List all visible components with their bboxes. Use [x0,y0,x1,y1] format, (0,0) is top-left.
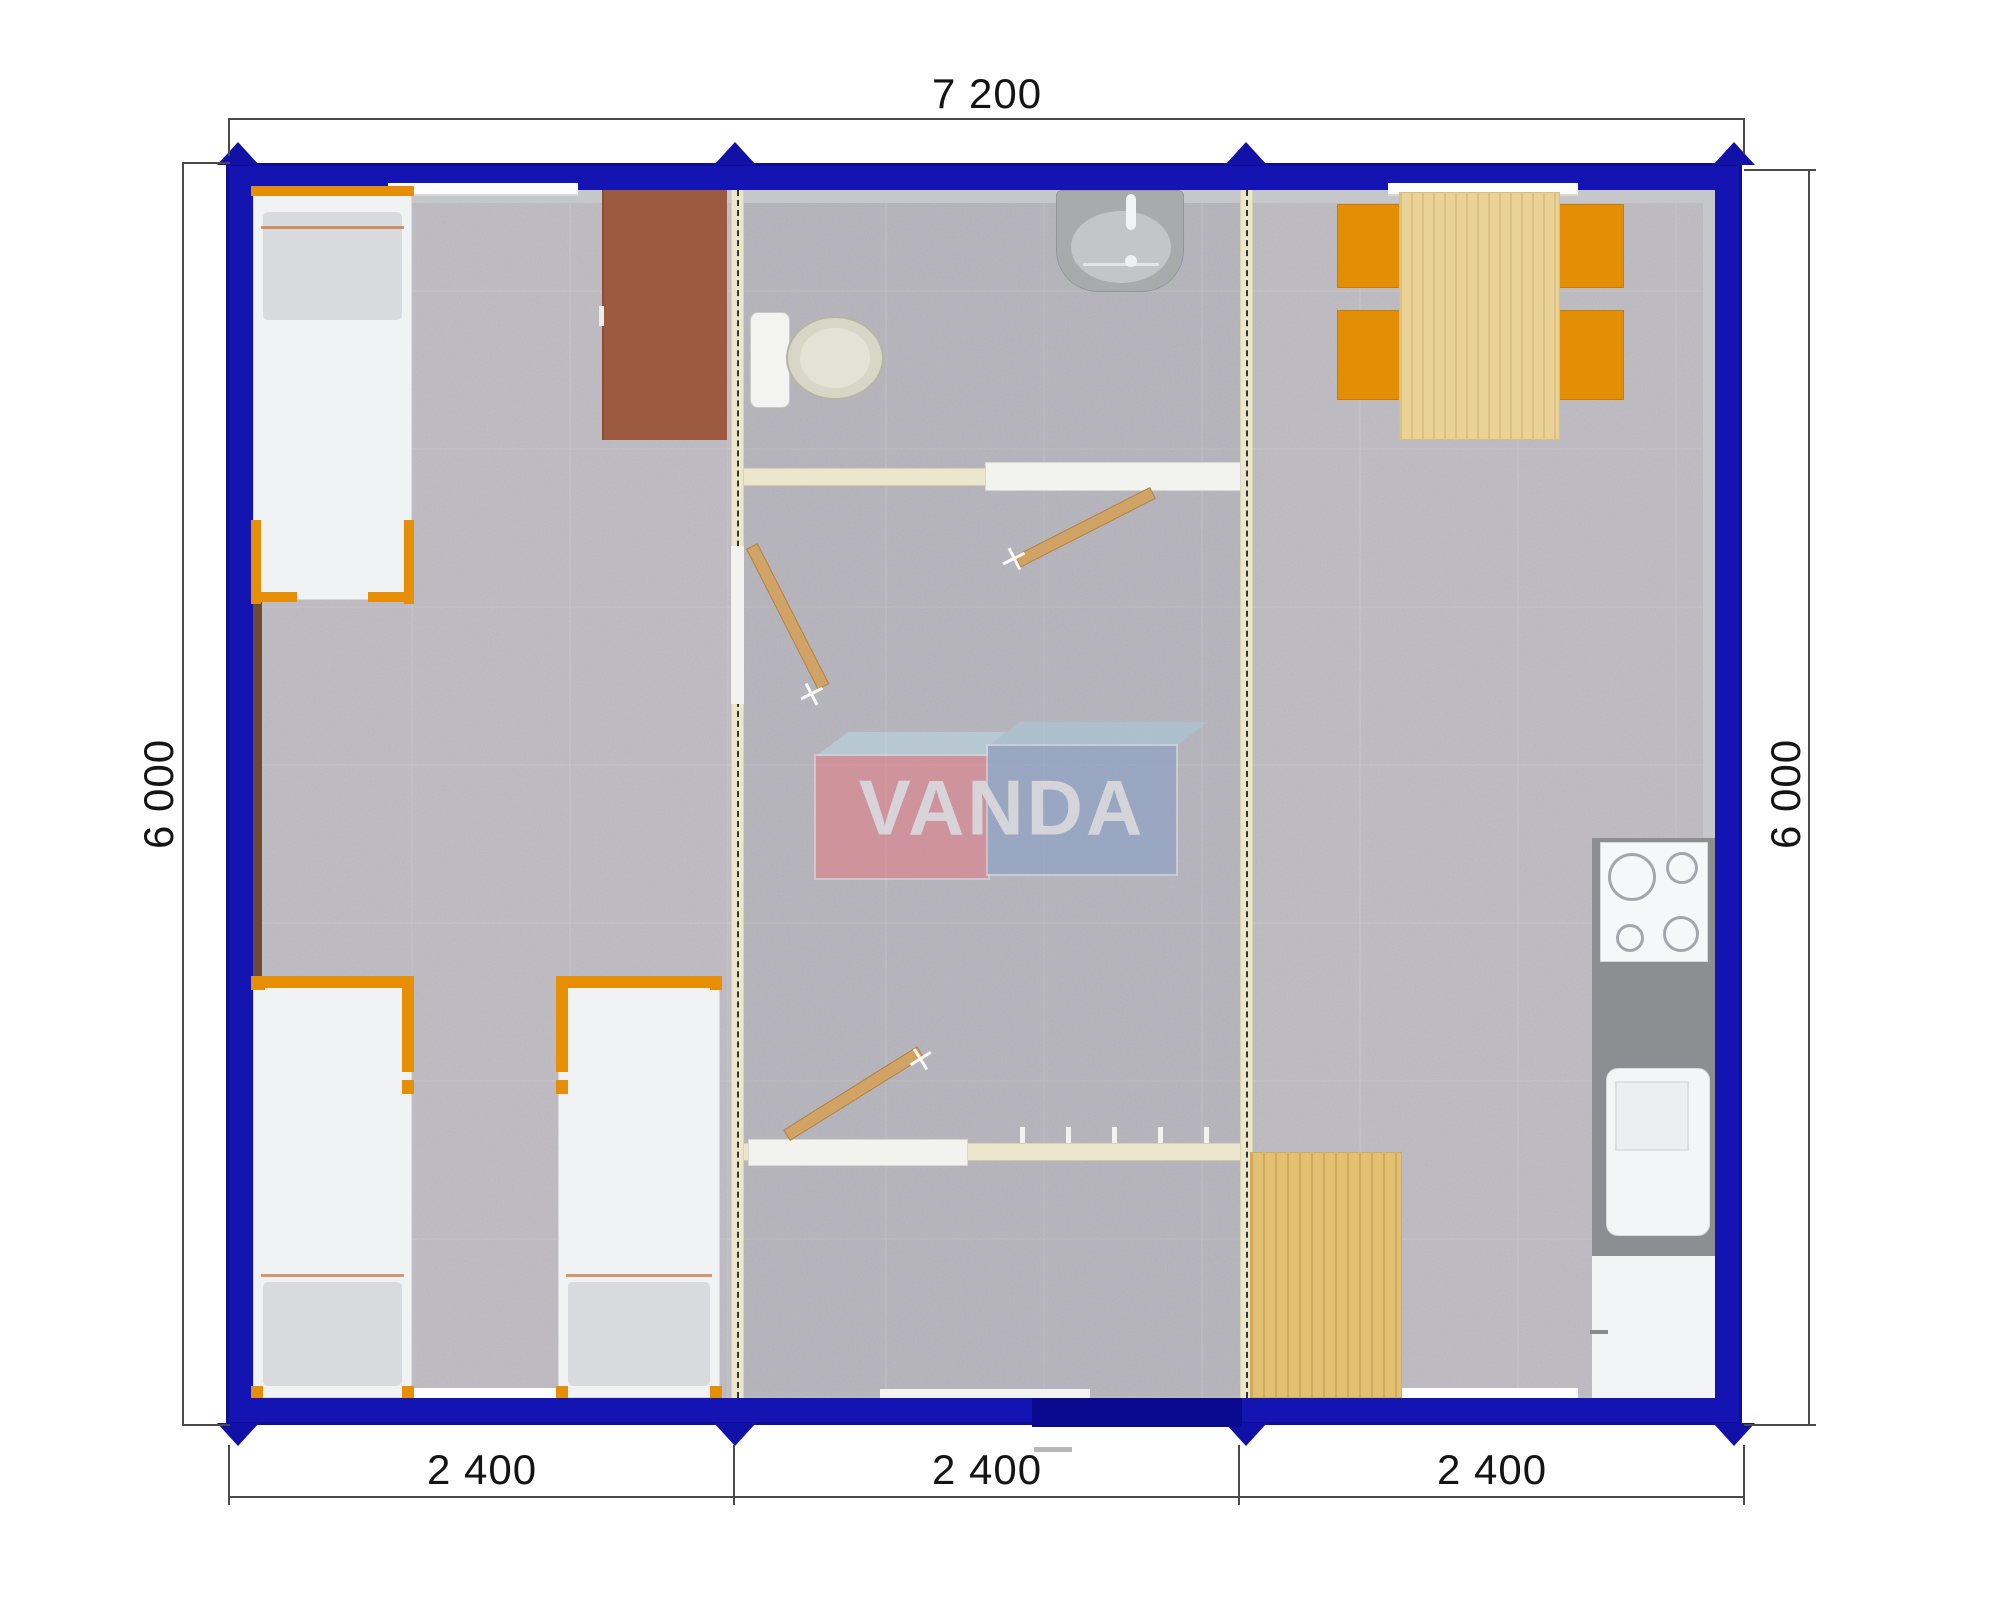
dim-ext [228,1445,230,1505]
dim-ext [1744,1424,1816,1426]
dim-ext [733,1445,735,1505]
sink-basin [1615,1081,1689,1151]
blanket-line [261,1274,404,1277]
basin-bowl [1071,211,1171,283]
dim-ext [1238,1445,1240,1505]
fridge [1592,1256,1715,1398]
brand-watermark: VANDA [810,728,1194,892]
dim-label-module-2: 2 400 [932,1446,1042,1494]
basin-line [1083,263,1159,266]
bed-bottom-middle [558,982,720,1398]
window [388,183,578,196]
dim-line-top [229,118,1744,120]
wooden-mat [1250,1152,1402,1398]
dim-ext [1744,169,1816,171]
dining-table [1399,192,1560,440]
dim-ext [228,118,230,156]
dim-label-top: 7 200 [932,70,1042,118]
chair [1337,310,1403,400]
chair [1337,204,1403,288]
track-tooth [1204,1127,1209,1143]
dim-ext [1743,118,1745,154]
entrance-door [1032,1398,1242,1427]
hall-door-panel [748,1139,968,1166]
blanket-line [566,1274,712,1277]
track-tooth [1158,1127,1163,1143]
blanket-line [261,226,404,229]
dim-ext [182,162,230,164]
wash-basin [1056,190,1184,292]
dim-label-module-3: 2 400 [1437,1446,1547,1494]
dim-ext [1743,1445,1745,1505]
dim-line-bottom [229,1496,1744,1498]
toilet-seat [800,328,870,388]
burner-icon [1663,916,1699,952]
dim-label-left: 6 000 [135,739,183,849]
logo-blue-box-top [988,722,1208,746]
bed-top-left [253,190,412,600]
module-joint-marker-icon [1225,142,1267,165]
floor-plan-canvas: VANDA 7 200 6 000 6 000 2 400 2 400 2 40… [0,0,2000,1597]
burner-icon [1666,852,1698,884]
desk [602,190,727,440]
corner-marker-icon [1713,142,1755,165]
brand-name: VANDA [810,763,1194,854]
right-wall-lining [1703,190,1715,838]
pillow [263,1282,402,1386]
pillow [568,1282,710,1386]
toilet [748,310,888,410]
kitchen-sink [1606,1068,1710,1236]
track-tooth [1066,1127,1071,1143]
desk-mark [599,306,604,326]
faucet-icon [1126,194,1136,230]
window [388,1388,572,1398]
bathroom-sliding-door [985,462,1241,491]
dim-label-module-1: 2 400 [427,1446,537,1494]
module-joint-marker-icon [714,1423,756,1446]
burner-icon [1616,924,1644,952]
module-joint-marker-icon [714,142,756,165]
window [1390,1388,1578,1398]
dim-label-right: 6 000 [1762,739,1810,849]
partition-wall-left [731,190,744,1398]
dim-ext [182,1424,230,1426]
track-tooth [1112,1127,1117,1143]
door-opening [731,546,744,704]
chair [1558,204,1624,288]
track-tooth [1020,1127,1025,1143]
corner-marker-icon [217,1423,259,1446]
bed-bottom-left [253,982,412,1398]
door-sill [880,1389,1090,1398]
corner-marker-icon [1713,1423,1755,1446]
drain-icon [1125,255,1137,267]
fridge-handle [1590,1330,1608,1334]
toilet-tank [750,312,790,408]
burner-icon [1608,853,1656,901]
chair [1558,310,1624,400]
